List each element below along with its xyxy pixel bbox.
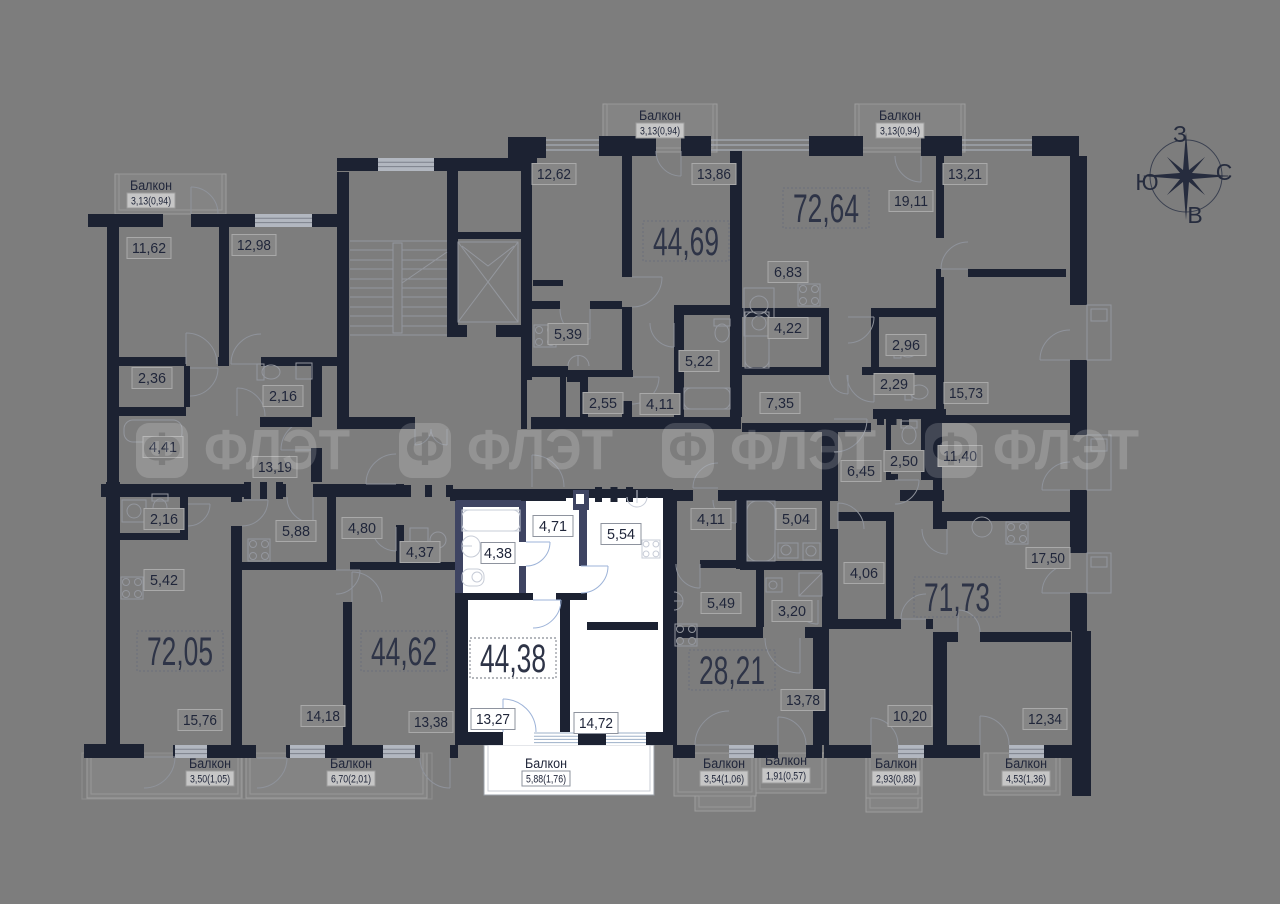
svg-text:ФЛЭТ: ФЛЭТ — [467, 418, 613, 482]
svg-text:ФЛЭТ: ФЛЭТ — [204, 418, 350, 482]
svg-text:В: В — [1187, 202, 1202, 228]
svg-text:С: С — [1216, 159, 1233, 185]
svg-text:З: З — [1173, 121, 1187, 147]
svg-text:Ю: Ю — [1135, 169, 1158, 195]
svg-text:ФЛЭТ: ФЛЭТ — [730, 418, 876, 482]
svg-text:ФЛЭТ: ФЛЭТ — [993, 418, 1139, 482]
